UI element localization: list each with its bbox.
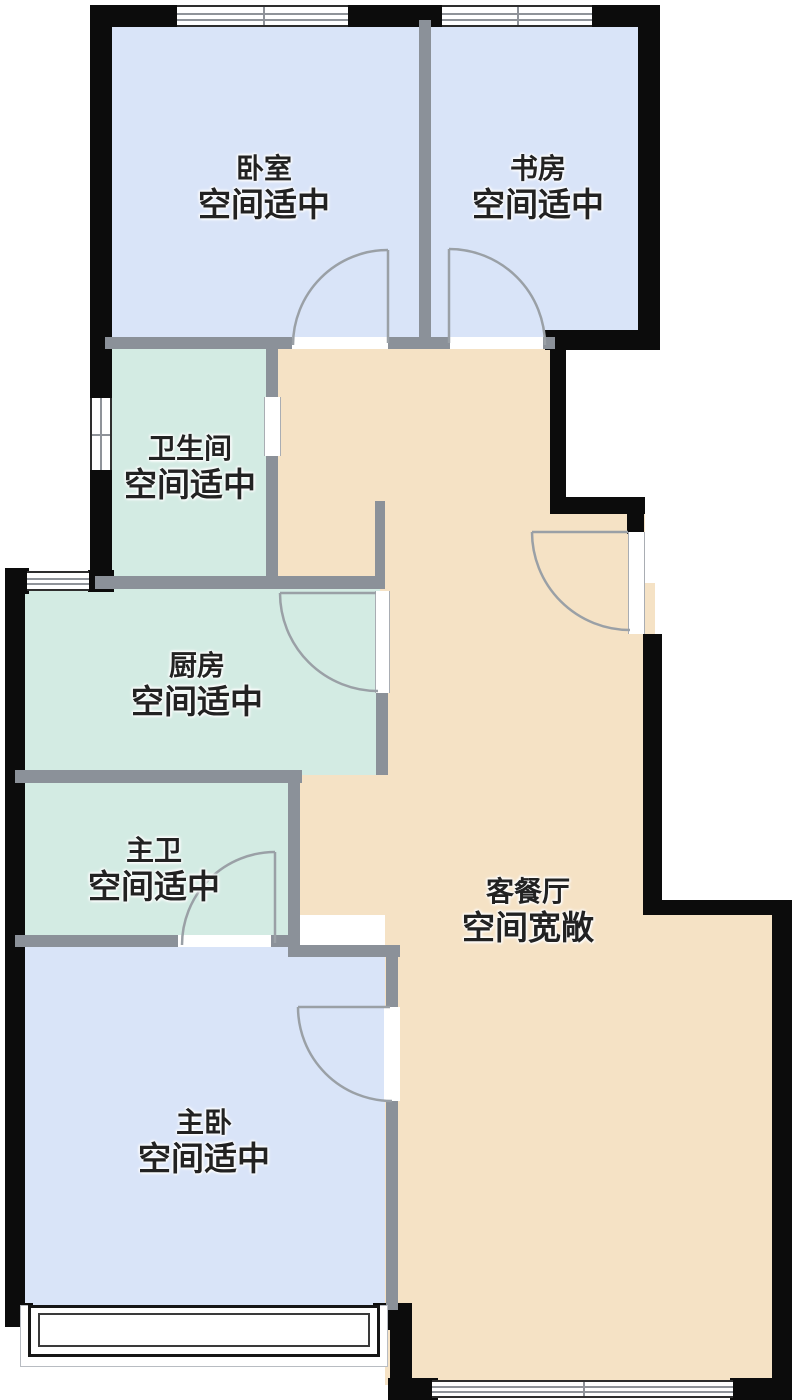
room-name: 厨房 [131,649,263,683]
room-label-living-dining: 客餐厅 空间宽敞 [462,875,594,947]
room-name: 主卧 [138,1106,270,1140]
door-opening-bedroom [292,337,388,349]
room-desc: 空间宽敞 [462,909,594,947]
wall-inner [266,456,278,582]
wall-inner [15,770,302,783]
wall-inner [105,337,292,349]
wall-inner [376,693,388,775]
room-label-bathroom: 卫生间 空间适中 [124,432,256,504]
room-name: 客餐厅 [462,875,594,909]
wall-inner [388,337,450,349]
door-opening-study [450,337,543,349]
room-living-mid [380,583,655,913]
wall-outer [390,1303,412,1400]
wall-outer [643,900,792,915]
wall-inner [543,337,555,349]
door-opening-bathroom [264,397,281,456]
door-opening-kitchen [375,591,390,693]
wall-inner [419,20,431,345]
window-bedroom [177,5,348,27]
wall-inner [386,945,398,1009]
wall-outer [627,512,644,534]
room-desc: 空间适中 [124,466,256,504]
room-living-south [385,905,778,1385]
wall-outer [638,5,660,350]
door-opening-master-bath [178,935,271,947]
room-label-bedroom: 卧室 空间适中 [198,152,330,224]
room-label-study: 书房 空间适中 [472,152,604,224]
room-living-foyer [275,343,552,583]
wall-outer [772,900,792,1400]
bay-window-inner [38,1313,370,1347]
floor-plan: 卧室 空间适中 书房 空间适中 卫生间 空间适中 厨房 空间适中 主卫 空间适中… [0,0,792,1400]
wall-outer [643,634,662,906]
wall-outer [550,345,566,513]
room-desc: 空间适中 [472,186,604,224]
room-label-master-bedroom: 主卧 空间适中 [138,1106,270,1178]
door-opening-entry [628,532,645,634]
room-label-kitchen: 厨房 空间适中 [131,649,263,721]
wall-inner [288,783,300,948]
window-living [432,1380,733,1398]
room-desc: 空间适中 [131,683,263,721]
wall-inner [15,935,178,947]
wall-inner [386,1101,398,1310]
room-desc: 空间适中 [138,1140,270,1178]
door-opening-master-bedroom [384,1007,400,1101]
room-desc: 空间适中 [88,868,220,906]
room-desc: 空间适中 [198,186,330,224]
room-name: 卫生间 [124,432,256,466]
room-living-west [295,775,385,915]
room-name: 书房 [472,152,604,186]
wall-inner [288,945,400,957]
room-name: 卧室 [198,152,330,186]
room-name: 主卫 [88,834,220,868]
window-kitchen [27,571,89,591]
window-bathroom [90,398,112,470]
wall-outer [90,468,112,582]
wall-outer [730,1378,792,1400]
wall-inner [266,345,278,397]
window-study [442,5,592,27]
wall-inner [271,935,288,947]
wall-inner [95,576,385,589]
wall-inner [375,501,385,581]
room-label-master-bath: 主卫 空间适中 [88,834,220,906]
